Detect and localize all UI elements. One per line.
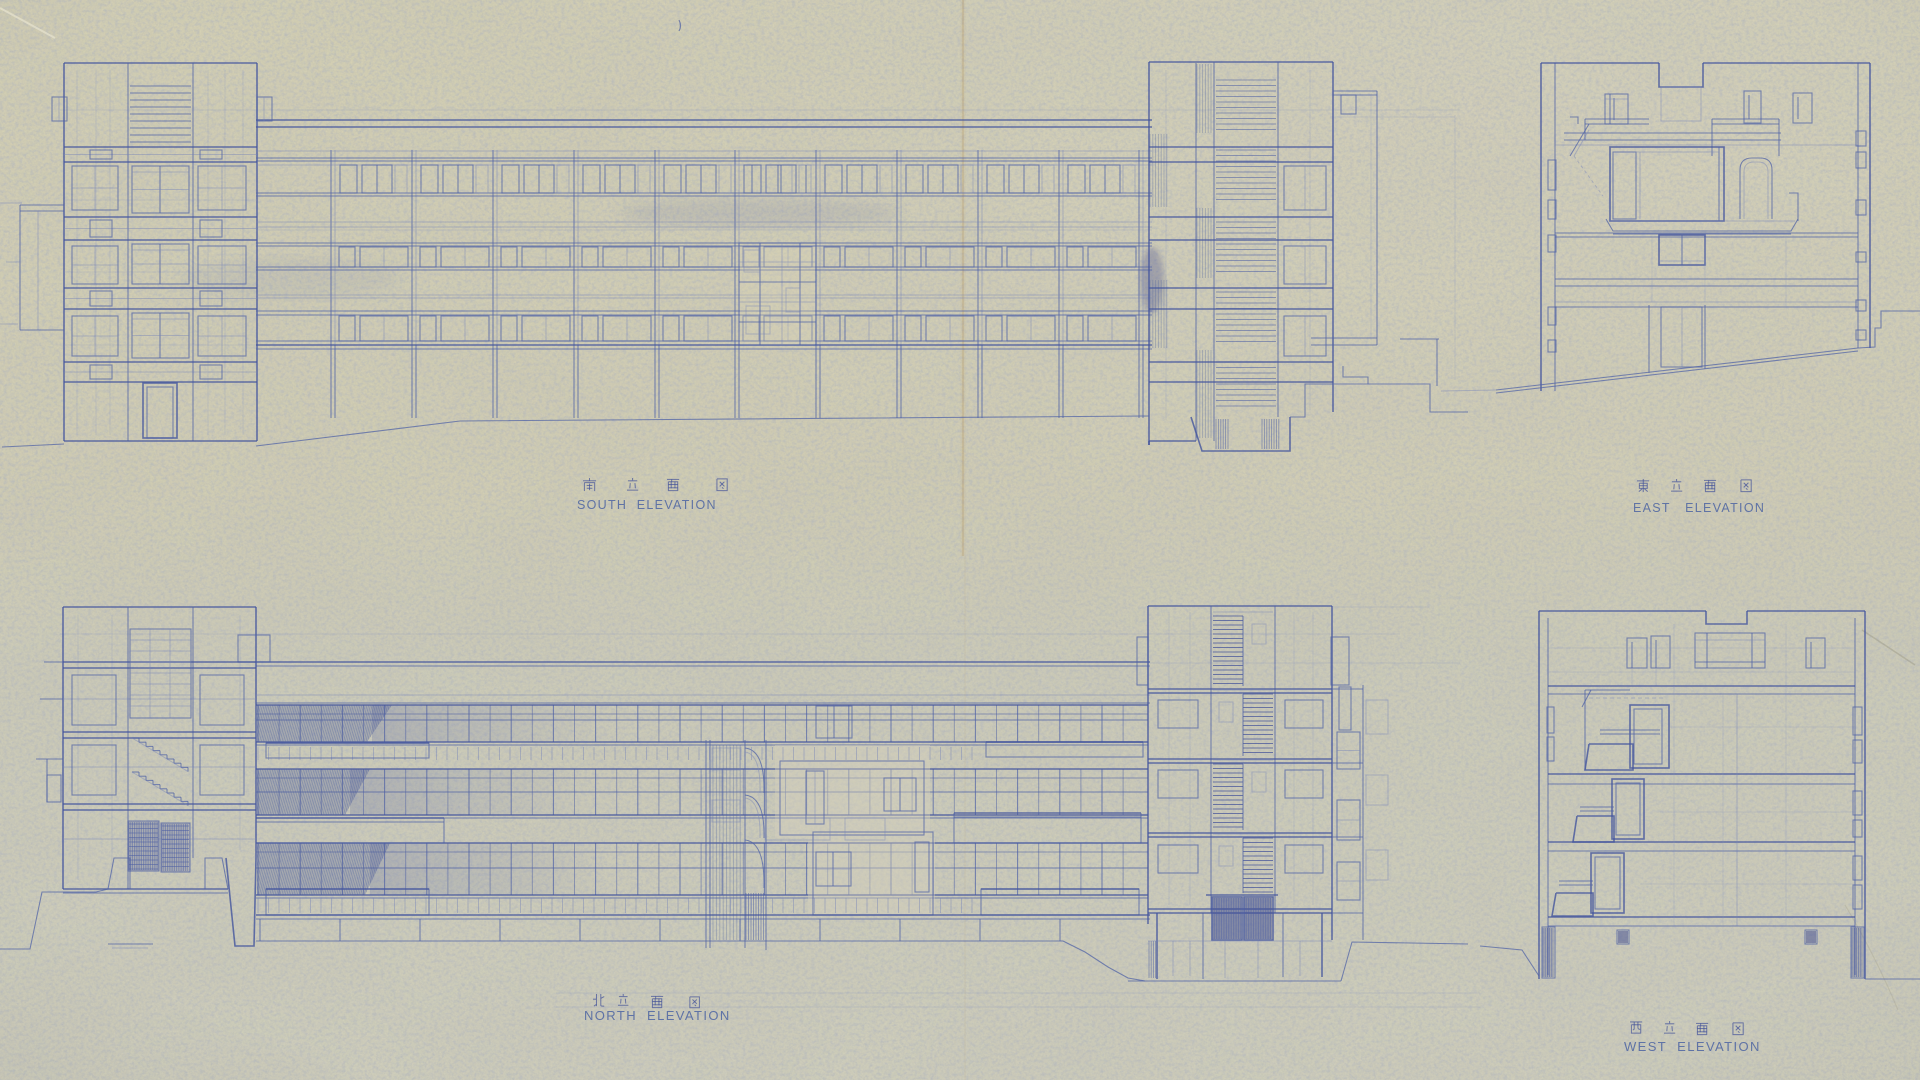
svg-text:WEST ELEVATION: WEST ELEVATION bbox=[1624, 1039, 1761, 1054]
svg-text:SOUTH ELEVATION: SOUTH ELEVATION bbox=[577, 498, 717, 512]
svg-text:EAST ELEVATION: EAST ELEVATION bbox=[1633, 501, 1765, 515]
svg-text:NORTH ELEVATION: NORTH ELEVATION bbox=[584, 1008, 731, 1023]
